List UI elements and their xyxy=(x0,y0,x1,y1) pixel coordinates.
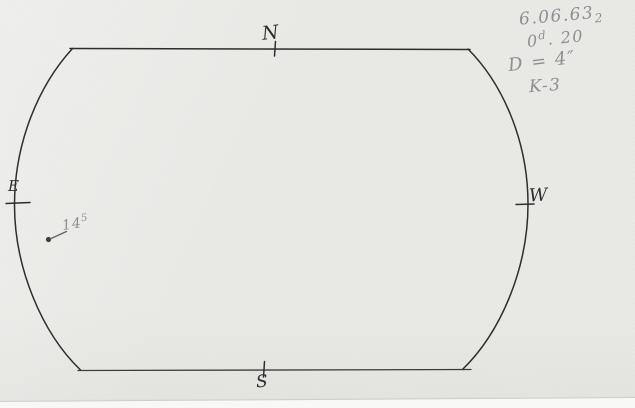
west-label: W xyxy=(529,187,548,206)
disk-outline-left-edge xyxy=(15,49,81,371)
spot-number-sup: 5 xyxy=(80,212,89,224)
disk-outline-right-edge xyxy=(463,49,529,370)
north-tick xyxy=(275,42,276,57)
spot-marker-dot xyxy=(46,237,51,242)
note-instrument-code: K-3 xyxy=(528,77,562,96)
disk-outline-bottom-edge xyxy=(78,370,471,371)
east-label: E xyxy=(8,179,19,194)
south-label: S xyxy=(255,374,268,392)
spot-number-base: 14 xyxy=(61,215,83,234)
note-date-sub: 2 xyxy=(594,11,604,26)
disk-outline-top-edge xyxy=(70,49,470,50)
east-tick xyxy=(6,203,30,204)
note-time-rest: . 20 xyxy=(547,26,585,49)
north-label: N xyxy=(261,23,280,44)
scanned-observation-sheet: N S E W 145 6.06.632 0d. 20 D = 4″ K-3 xyxy=(0,0,635,408)
